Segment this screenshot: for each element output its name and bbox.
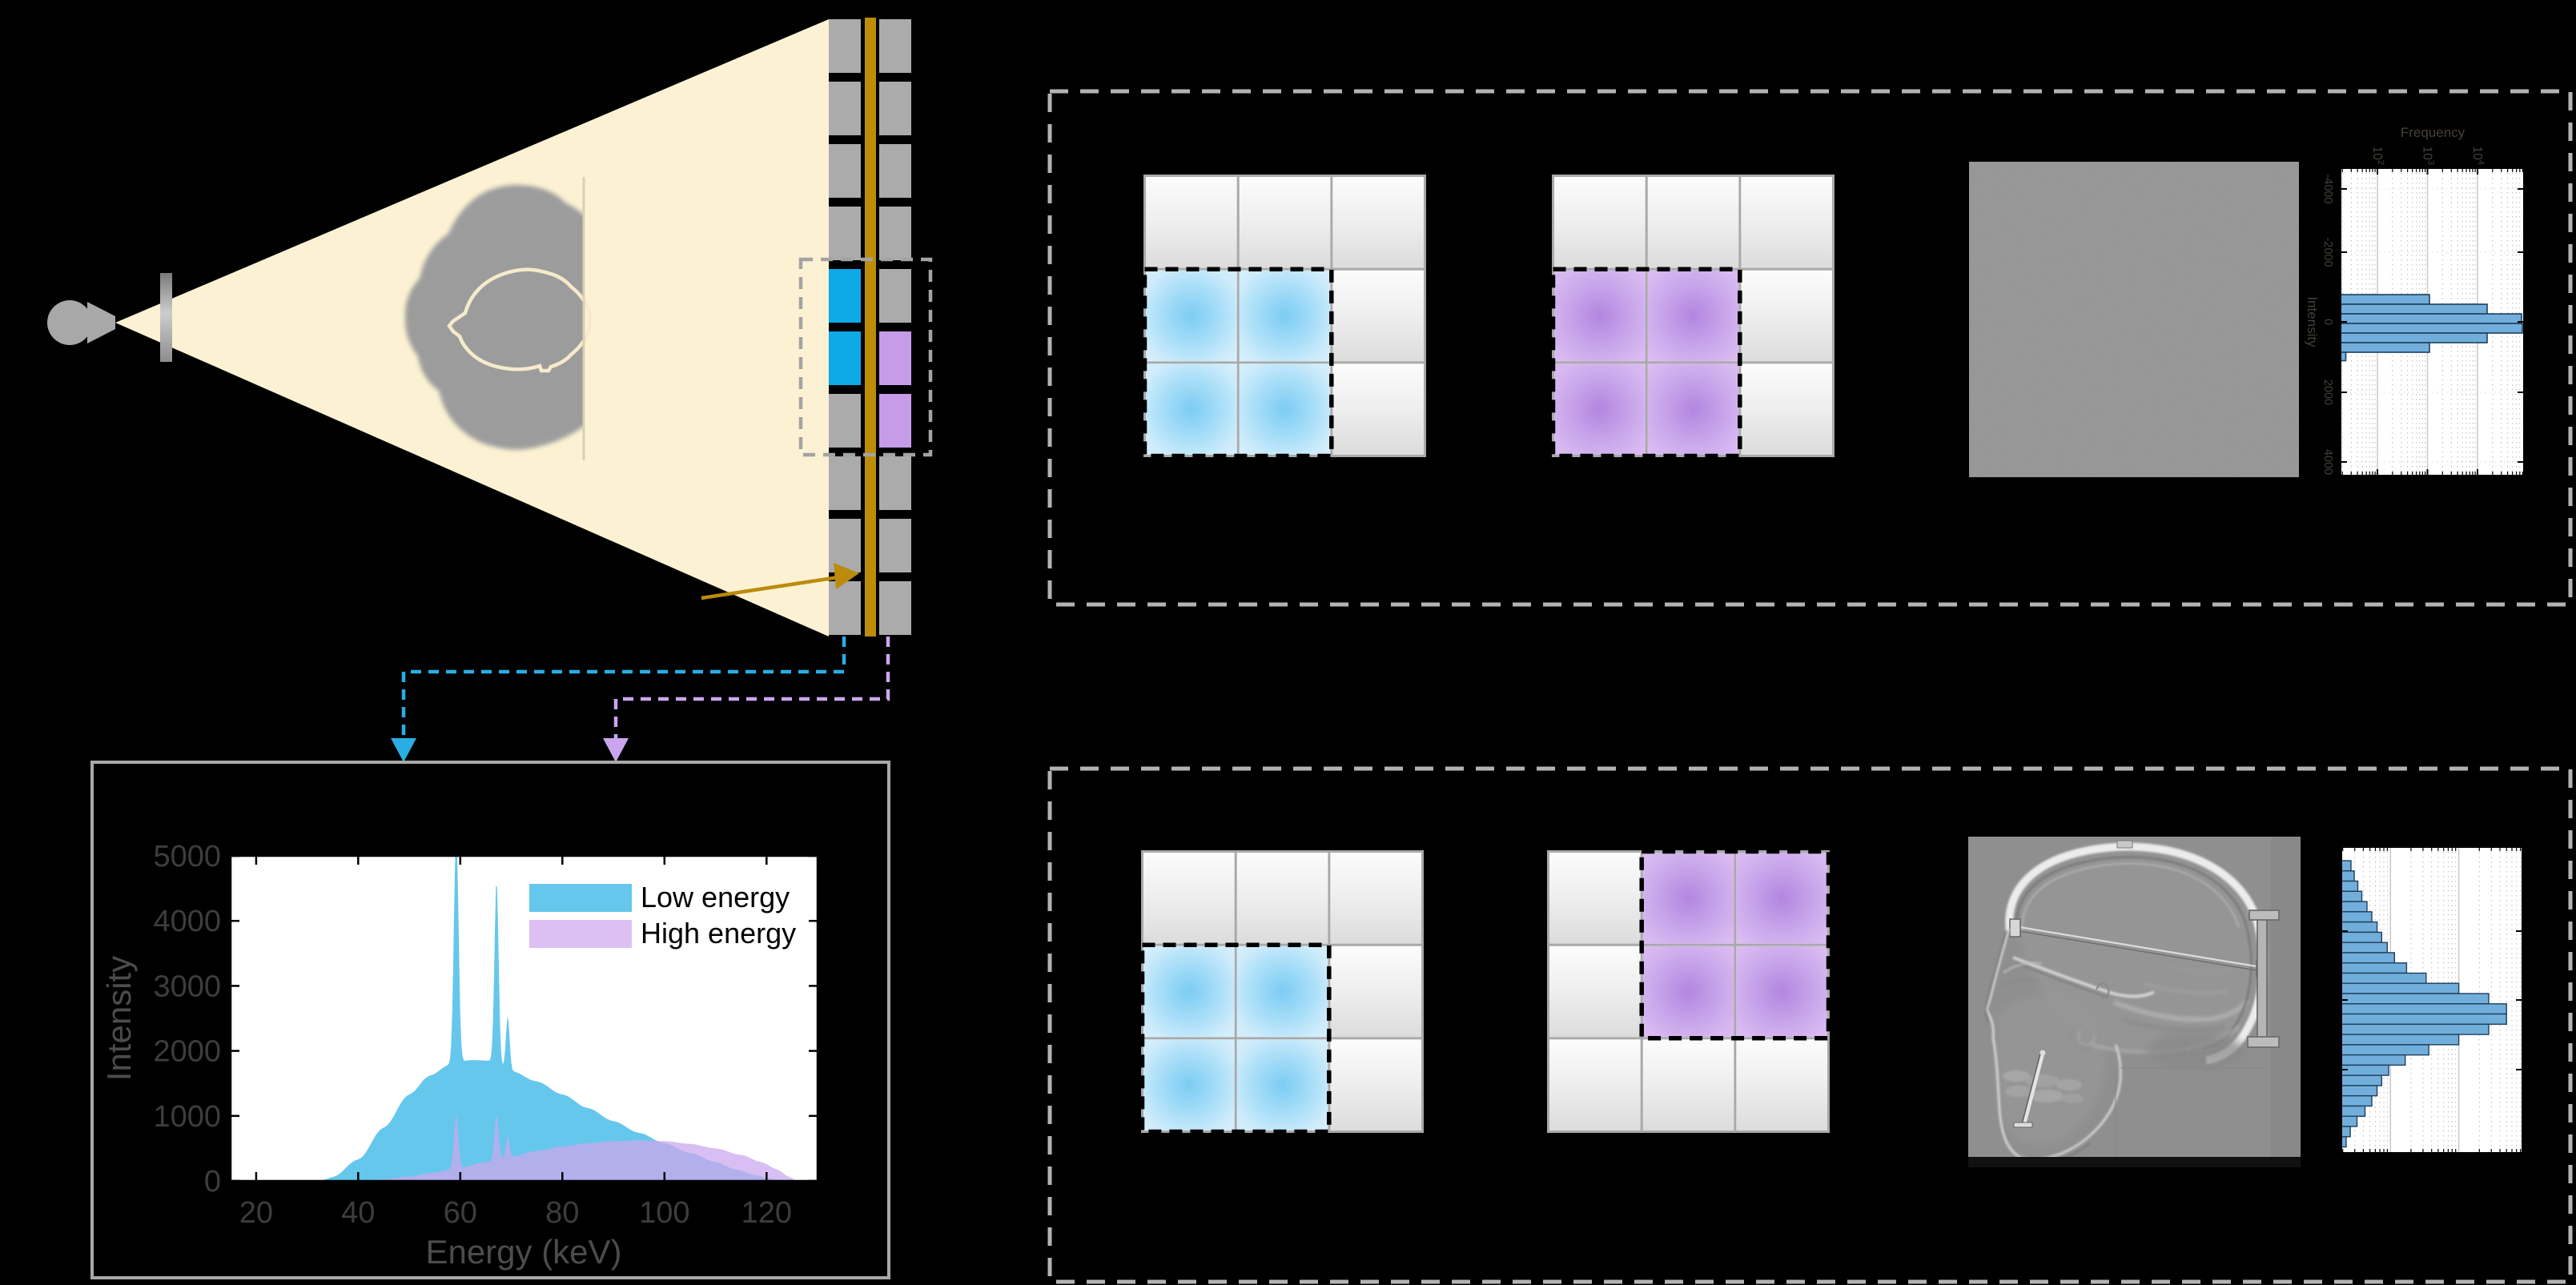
- svg-text:80: 80: [545, 1196, 579, 1230]
- svg-text:1000: 1000: [153, 1100, 221, 1134]
- svg-text:Energy (keV): Energy (keV): [425, 1233, 621, 1271]
- svg-text:-2000: -2000: [2321, 237, 2334, 267]
- svg-text:3000: 3000: [153, 970, 221, 1003]
- svg-text:100: 100: [639, 1196, 689, 1230]
- svg-text:60: 60: [444, 1196, 477, 1230]
- svg-text:20: 20: [239, 1196, 273, 1230]
- svg-text:2000: 2000: [153, 1035, 221, 1069]
- svg-text:120: 120: [741, 1196, 792, 1230]
- svg-text:Low energy: Low energy: [641, 881, 790, 914]
- svg-text:0: 0: [2321, 319, 2334, 325]
- svg-text:40: 40: [341, 1196, 375, 1230]
- svg-text:-4000: -4000: [2321, 174, 2334, 203]
- svg-text:Intensity: Intensity: [2305, 296, 2320, 347]
- svg-text:4000: 4000: [153, 905, 221, 938]
- svg-text:4000: 4000: [2321, 449, 2334, 475]
- svg-text:Intensity: Intensity: [100, 956, 138, 1081]
- svg-text:5000: 5000: [153, 840, 221, 873]
- svg-text:High energy: High energy: [641, 917, 796, 950]
- svg-text:2000: 2000: [2321, 379, 2334, 405]
- svg-text:Frequency: Frequency: [2401, 125, 2465, 140]
- svg-text:0: 0: [204, 1165, 221, 1199]
